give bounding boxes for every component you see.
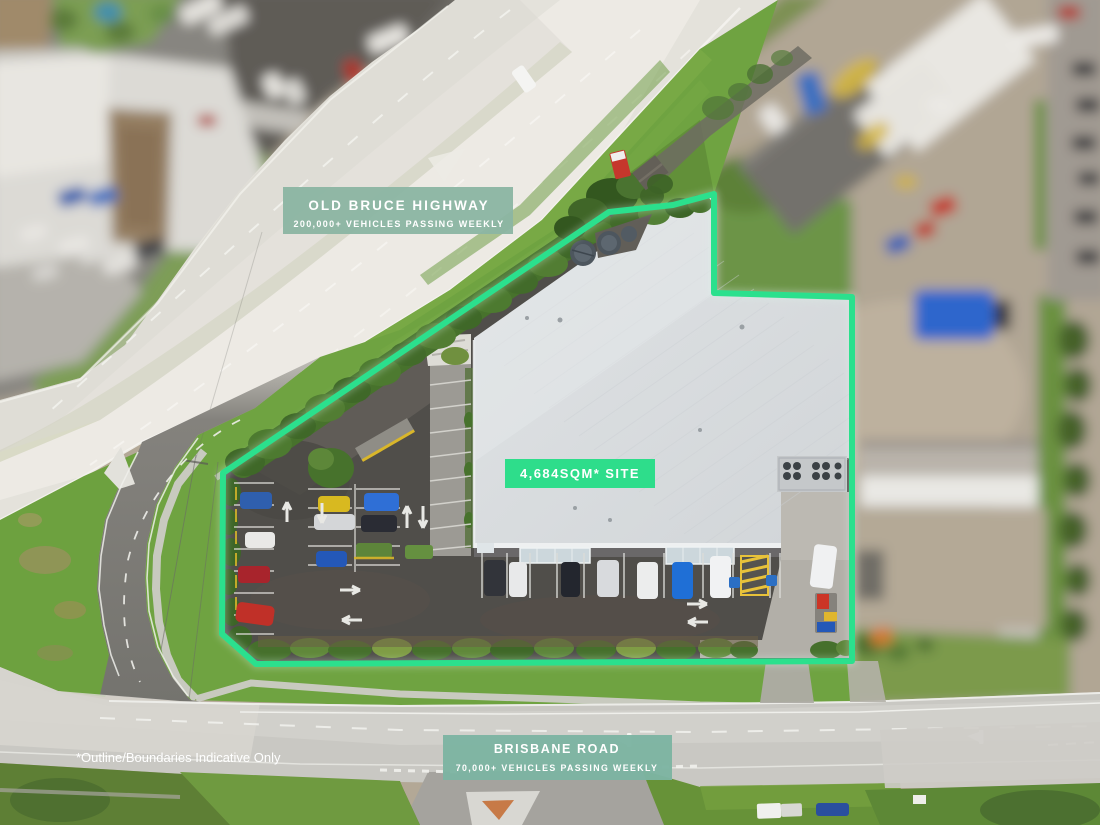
svg-text:200,000+ VEHICLES PASSING WEEK: 200,000+ VEHICLES PASSING WEEKLY — [293, 219, 504, 229]
svg-text:BRISBANE ROAD: BRISBANE ROAD — [494, 742, 620, 756]
svg-text:4,684SQM* SITE: 4,684SQM* SITE — [520, 466, 640, 481]
svg-text:OLD BRUCE HIGHWAY: OLD BRUCE HIGHWAY — [308, 198, 489, 213]
svg-text:*Outline/Boundaries Indicative: *Outline/Boundaries Indicative Only — [76, 750, 281, 765]
svg-text:70,000+ VEHICLES PASSING WEEKL: 70,000+ VEHICLES PASSING WEEKLY — [456, 763, 659, 773]
